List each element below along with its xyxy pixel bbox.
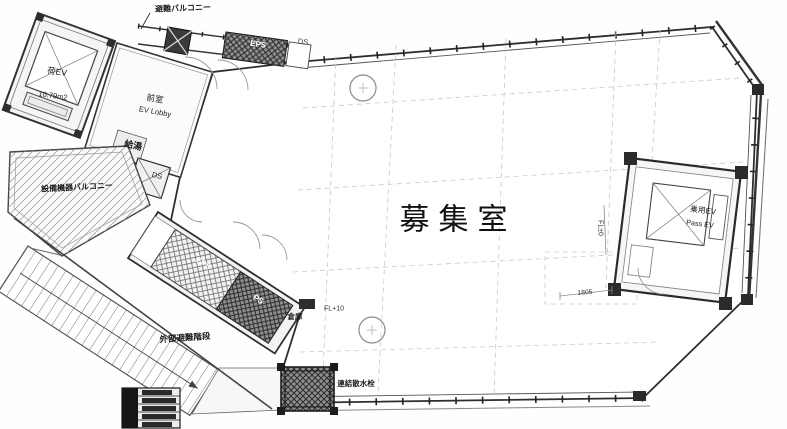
ds-upper-label: DS [151,171,163,181]
floorplan: 募集室 避難バルコニー 荷EV 10.79m2 前室 EV Lobby 給湯 D… [0,0,787,429]
sprinkler-label: 連結散水栓 [337,380,375,388]
fl-plus10-label: FL+10 [324,305,344,312]
dim-1805-label: 1805 [577,289,593,297]
legend-table [122,388,180,428]
ds-top-label: DS [297,37,308,46]
passenger-ev-block [614,158,741,303]
fl-zero-label: FL±0 [596,220,603,236]
floorplan-linework [0,0,787,429]
main-room-label: 募集室 [400,204,517,236]
storage-label: 倉庫 [288,313,303,321]
equipment-balcony [8,146,150,256]
